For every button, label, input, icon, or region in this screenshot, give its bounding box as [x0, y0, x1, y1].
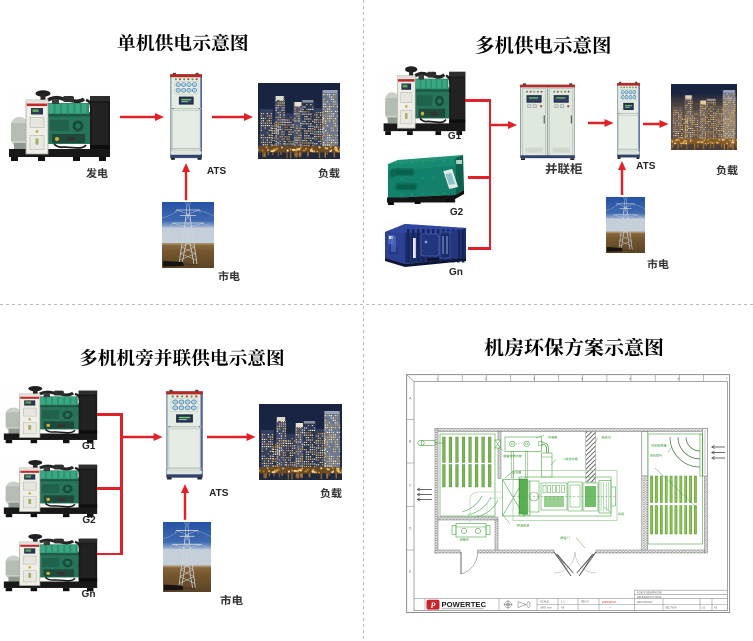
svg-text:1: 1 [436, 377, 438, 381]
svg-text:7: 7 [726, 377, 728, 381]
svg-text:5: 5 [629, 377, 631, 381]
svg-text:3: 3 [533, 377, 535, 381]
svg-text:6: 6 [678, 377, 680, 381]
svg-text:SCALE: SCALE [540, 600, 549, 604]
svg-text:HM-B1200 6.5 (STD): HM-B1200 6.5 (STD) [637, 595, 661, 599]
svg-text:+: + [609, 607, 611, 610]
svg-text:P: P [431, 601, 436, 610]
svg-text:A3: A3 [714, 606, 718, 610]
svg-text:E: E [409, 570, 412, 574]
svg-text:SECTION: SECTION [665, 606, 677, 610]
svg-text:C: C [409, 484, 412, 488]
svg-text:A3: A3 [561, 606, 565, 610]
svg-text:REV A: REV A [581, 600, 589, 604]
svg-text:1/1: 1/1 [702, 606, 706, 610]
svg-text:A: A [409, 397, 412, 401]
svg-text:2023/12/4-5: 2023/12/4-5 [602, 600, 616, 604]
svg-text:POWERTEC: POWERTEC [442, 600, 487, 609]
svg-text:1:1: 1:1 [561, 600, 565, 604]
svg-text:2: 2 [485, 377, 487, 381]
svg-text:4: 4 [581, 377, 583, 381]
svg-text:B: B [409, 440, 412, 444]
svg-text:POINT GENERATOR: POINT GENERATOR [637, 591, 662, 595]
svg-text:DR.N POLSY: DR.N POLSY [637, 600, 653, 604]
svg-text:UNIT mm: UNIT mm [540, 606, 552, 610]
svg-text:D: D [409, 527, 412, 531]
